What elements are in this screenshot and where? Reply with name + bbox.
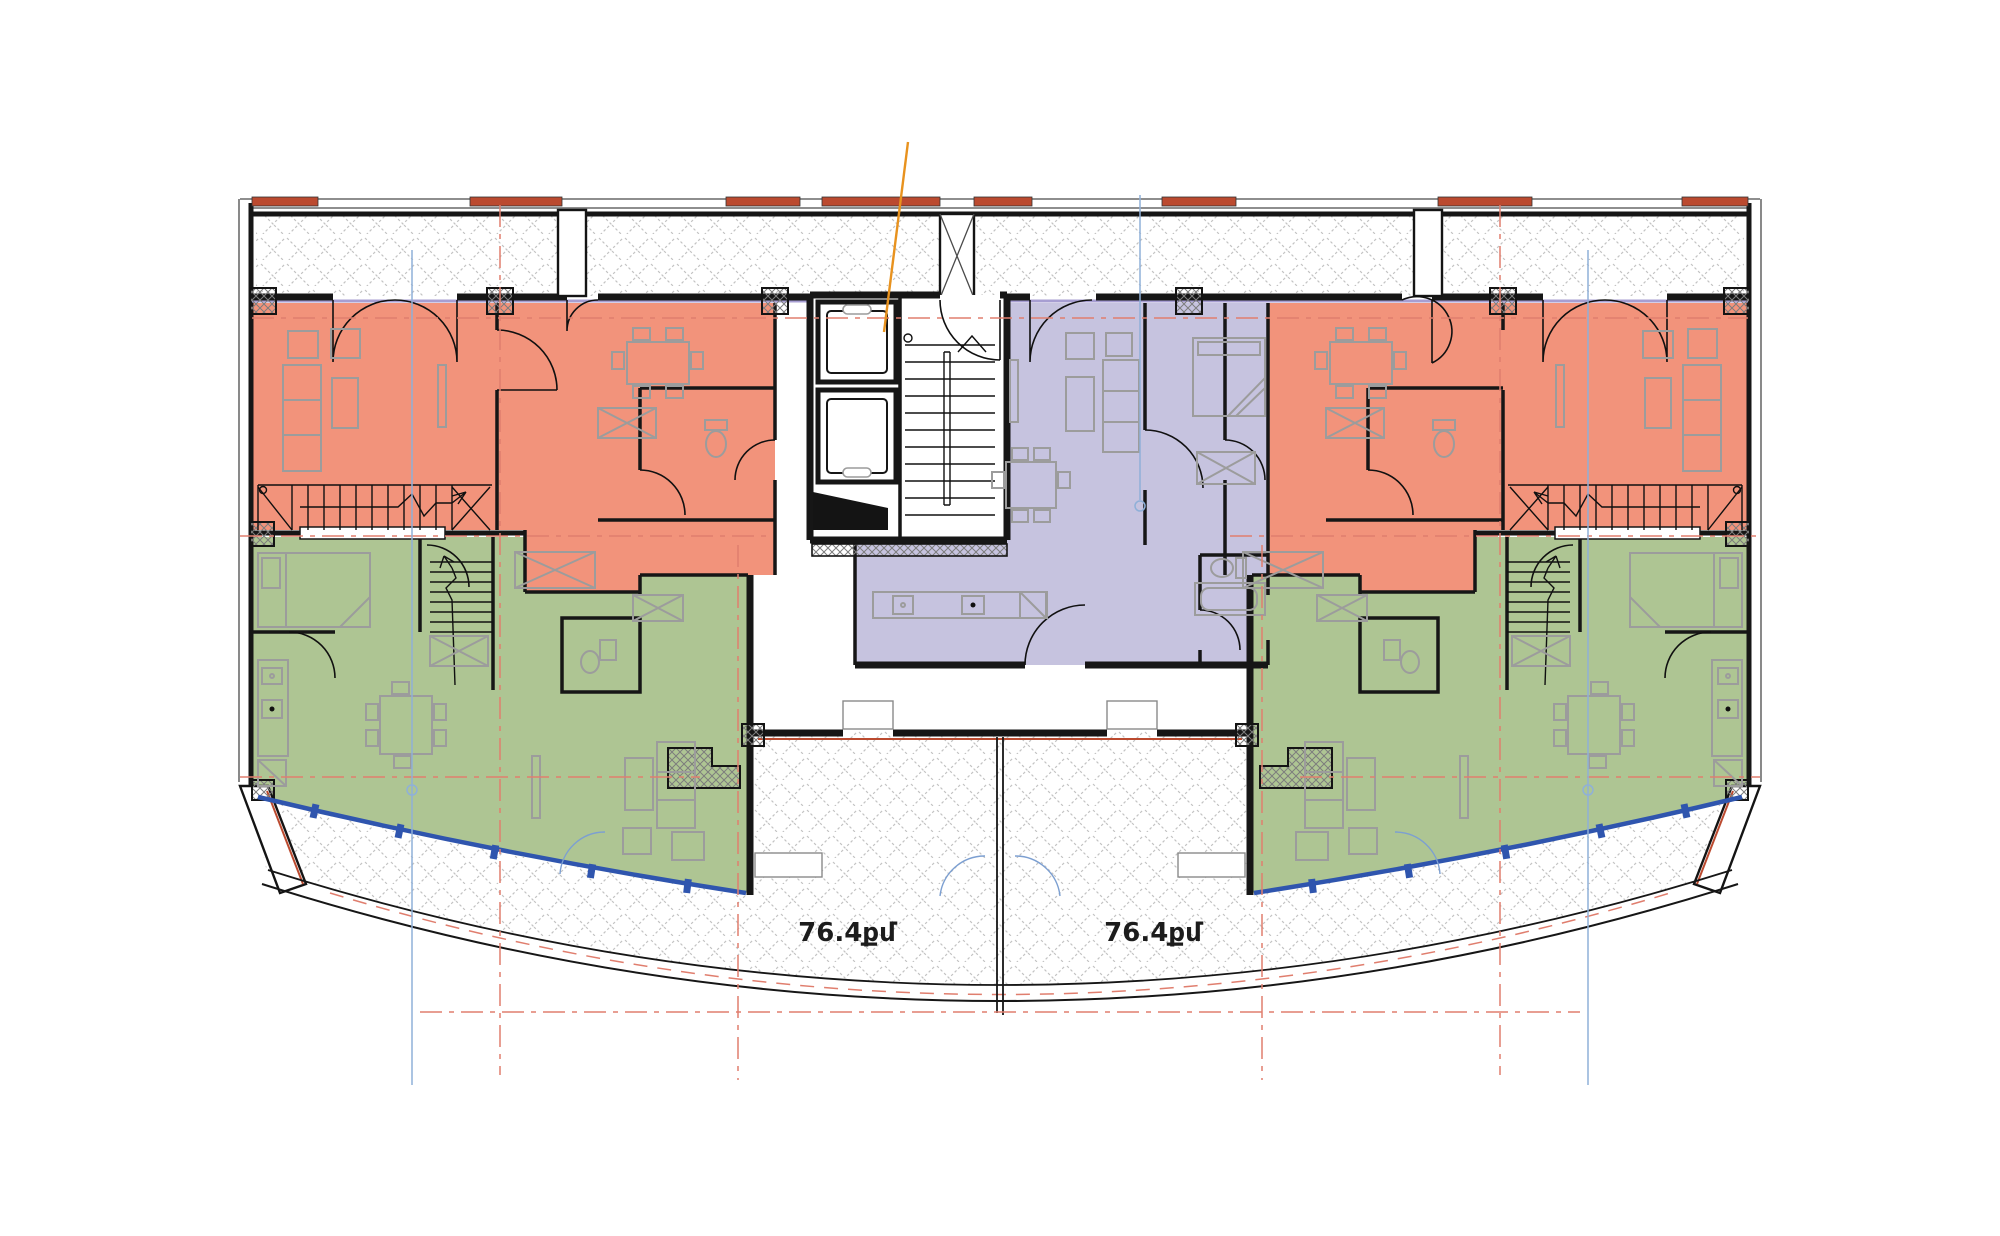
terrace-area-label-left: 76.4քմ — [798, 918, 898, 948]
top-balcony-hatch — [256, 216, 1744, 296]
terrace-area-label-right: 76.4քմ — [1104, 918, 1204, 948]
braced-column — [940, 214, 974, 298]
core — [810, 295, 1007, 556]
top-wall-red-caps — [252, 197, 1748, 206]
floor-plan-drawing: 76.4քմ 76.4քմ — [0, 0, 2000, 1236]
floor-plan-canvas: 76.4քմ 76.4քմ — [0, 0, 2000, 1236]
